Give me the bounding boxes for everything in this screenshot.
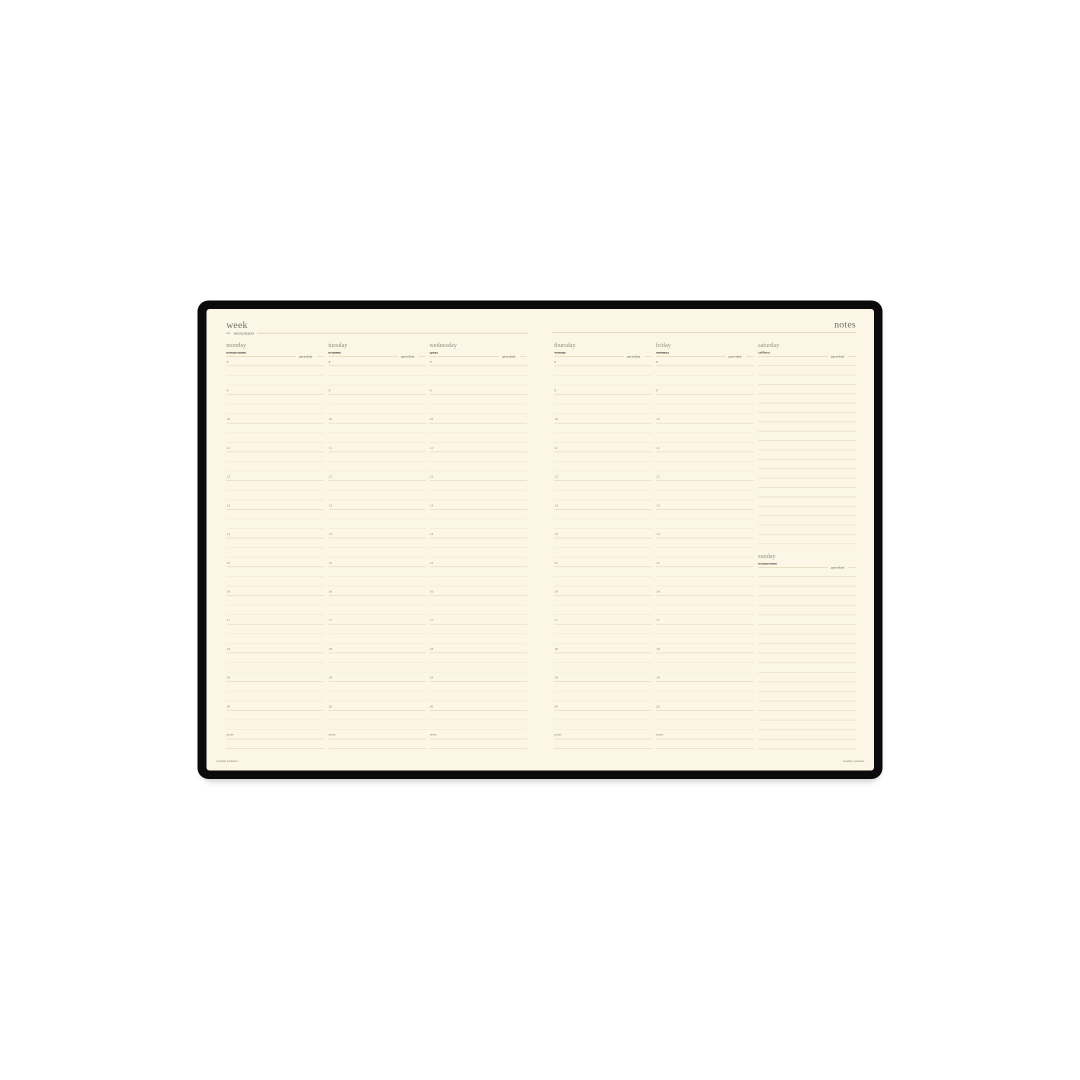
svg-text:9: 9: [227, 389, 229, 393]
svg-text:18: 18: [430, 647, 434, 651]
svg-text:12: 12: [430, 475, 434, 479]
svg-text:9: 9: [656, 389, 658, 393]
svg-text:20: 20: [227, 704, 231, 708]
svg-text:воскресенье: воскресенье: [758, 561, 777, 565]
svg-text:notes: notes: [656, 732, 664, 736]
svg-text:15: 15: [656, 561, 660, 565]
svg-text:14: 14: [554, 532, 558, 536]
svg-text:13: 13: [554, 503, 558, 507]
svg-text:дата/date: дата/date: [627, 355, 641, 359]
svg-text:13: 13: [329, 503, 333, 507]
svg-text:понедельник: понедельник: [226, 350, 246, 354]
svg-text:11: 11: [554, 446, 558, 450]
svg-text:9: 9: [430, 389, 432, 393]
svg-text:12: 12: [554, 475, 558, 479]
svg-text:10: 10: [430, 417, 434, 421]
svg-text:17: 17: [430, 618, 434, 622]
svg-text:thursday: thursday: [554, 343, 576, 349]
svg-text:friday: friday: [656, 342, 671, 349]
svg-text:8: 8: [430, 360, 432, 364]
svg-text:8: 8: [329, 360, 331, 364]
svg-text:notes: notes: [227, 732, 235, 736]
svg-text:monday: monday: [226, 343, 246, 349]
svg-text:8: 8: [227, 360, 229, 364]
svg-text:14: 14: [329, 532, 333, 536]
svg-text:10: 10: [554, 417, 558, 421]
svg-text:10: 10: [329, 417, 333, 421]
svg-text:18: 18: [227, 647, 231, 651]
svg-text:вторник: вторник: [328, 350, 341, 354]
svg-text:wednesday: wednesday: [430, 343, 458, 349]
svg-text:14: 14: [227, 532, 231, 536]
svg-text:16: 16: [329, 589, 333, 593]
svg-text:17: 17: [227, 618, 231, 622]
svg-text:9: 9: [554, 389, 556, 393]
svg-text:дата/date: дата/date: [502, 355, 516, 359]
svg-text:13: 13: [656, 503, 660, 507]
svg-text:11: 11: [329, 446, 333, 450]
svg-text:20: 20: [656, 704, 660, 708]
svg-text:11: 11: [227, 446, 231, 450]
svg-text:sunday: sunday: [758, 554, 776, 560]
svg-text:13: 13: [430, 503, 434, 507]
svg-text:15: 15: [554, 561, 558, 565]
svg-text:12: 12: [227, 475, 231, 479]
svg-text:11: 11: [430, 446, 434, 450]
svg-text:10: 10: [227, 417, 231, 421]
svg-text:20: 20: [554, 704, 558, 708]
svg-text:18: 18: [329, 647, 333, 651]
svg-text:дата/date: дата/date: [401, 355, 415, 359]
svg-text:18: 18: [656, 647, 660, 651]
svg-text:tuesday: tuesday: [328, 343, 347, 349]
svg-text:19: 19: [554, 676, 558, 680]
svg-text:8: 8: [656, 360, 658, 364]
svg-text:дата/date: дата/date: [831, 566, 845, 570]
svg-text:16: 16: [430, 589, 434, 593]
svg-text:19: 19: [329, 676, 333, 680]
svg-text:дата/date: дата/date: [299, 355, 313, 359]
svg-text:notes: notes: [329, 732, 337, 736]
svg-text:notes: notes: [834, 320, 856, 331]
svg-text:месяц неделя: месяц неделя: [234, 332, 255, 336]
svg-text:18: 18: [554, 647, 558, 651]
svg-text:дата/date: дата/date: [831, 355, 845, 359]
svg-text:12: 12: [329, 475, 333, 479]
svg-text:суббота: суббота: [758, 350, 770, 354]
svg-text:17: 17: [329, 618, 333, 622]
svg-text:17: 17: [656, 618, 660, 622]
svg-text:notes: notes: [554, 732, 562, 736]
svg-text:9: 9: [329, 389, 331, 393]
svg-text:пятница: пятница: [656, 350, 669, 354]
svg-text:13: 13: [227, 503, 231, 507]
svg-text:15: 15: [329, 561, 333, 565]
svg-text:17: 17: [554, 618, 558, 622]
svg-text:12: 12: [656, 475, 660, 479]
svg-text:среда: среда: [430, 350, 439, 354]
svg-text:дата/date: дата/date: [728, 355, 742, 359]
svg-text:15: 15: [430, 561, 434, 565]
svg-text:16: 16: [656, 589, 660, 593]
svg-text:16: 16: [554, 589, 558, 593]
svg-text:14: 14: [430, 532, 434, 536]
svg-text:19: 19: [227, 676, 231, 680]
svg-text:weekly planner: weekly planner: [843, 759, 865, 763]
svg-text:20: 20: [430, 704, 434, 708]
svg-text:week: week: [226, 320, 247, 331]
svg-text:четверг: четверг: [554, 350, 566, 354]
svg-text:8: 8: [554, 360, 556, 364]
svg-text:19: 19: [430, 676, 434, 680]
svg-text:15: 15: [227, 561, 231, 565]
svg-text:20: 20: [329, 704, 333, 708]
svg-text:weekly planner: weekly planner: [216, 759, 238, 763]
svg-text:14: 14: [656, 532, 660, 536]
svg-text:10: 10: [656, 417, 660, 421]
svg-text:19: 19: [656, 676, 660, 680]
svg-text:11: 11: [656, 446, 660, 450]
svg-text:notes: notes: [430, 732, 438, 736]
svg-text:saturday: saturday: [758, 343, 779, 349]
svg-text:16: 16: [227, 589, 231, 593]
